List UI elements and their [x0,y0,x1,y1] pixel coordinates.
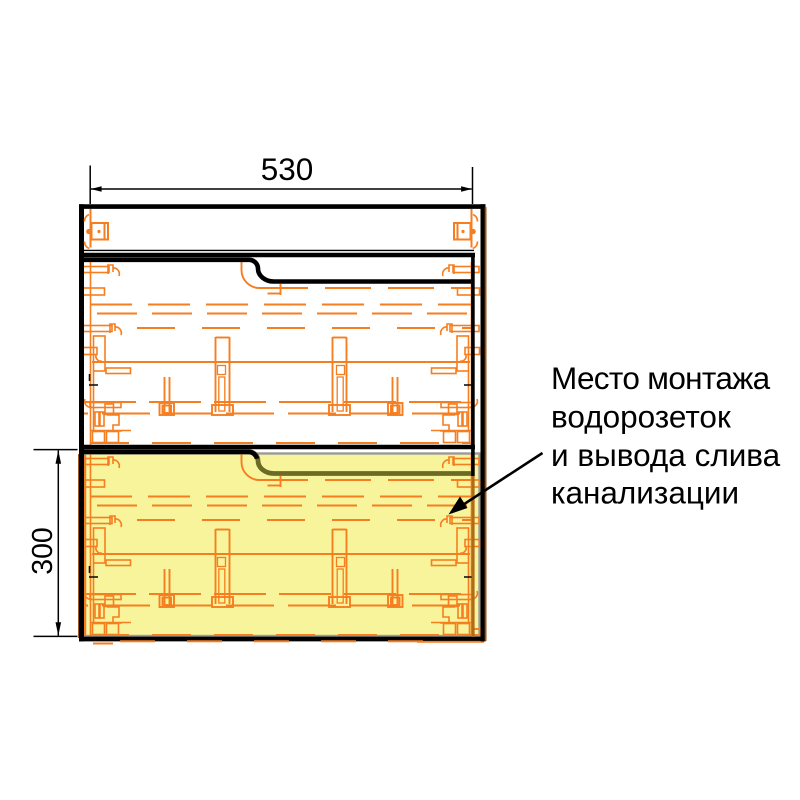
svg-text:Место монтажа: Место монтажа [551,360,771,396]
svg-text:и вывода слива: и вывода слива [551,437,781,473]
svg-text:300: 300 [27,527,59,575]
svg-text:530: 530 [261,151,314,187]
svg-text:канализации: канализации [551,475,739,511]
svg-text:водорозеток: водорозеток [551,399,731,435]
